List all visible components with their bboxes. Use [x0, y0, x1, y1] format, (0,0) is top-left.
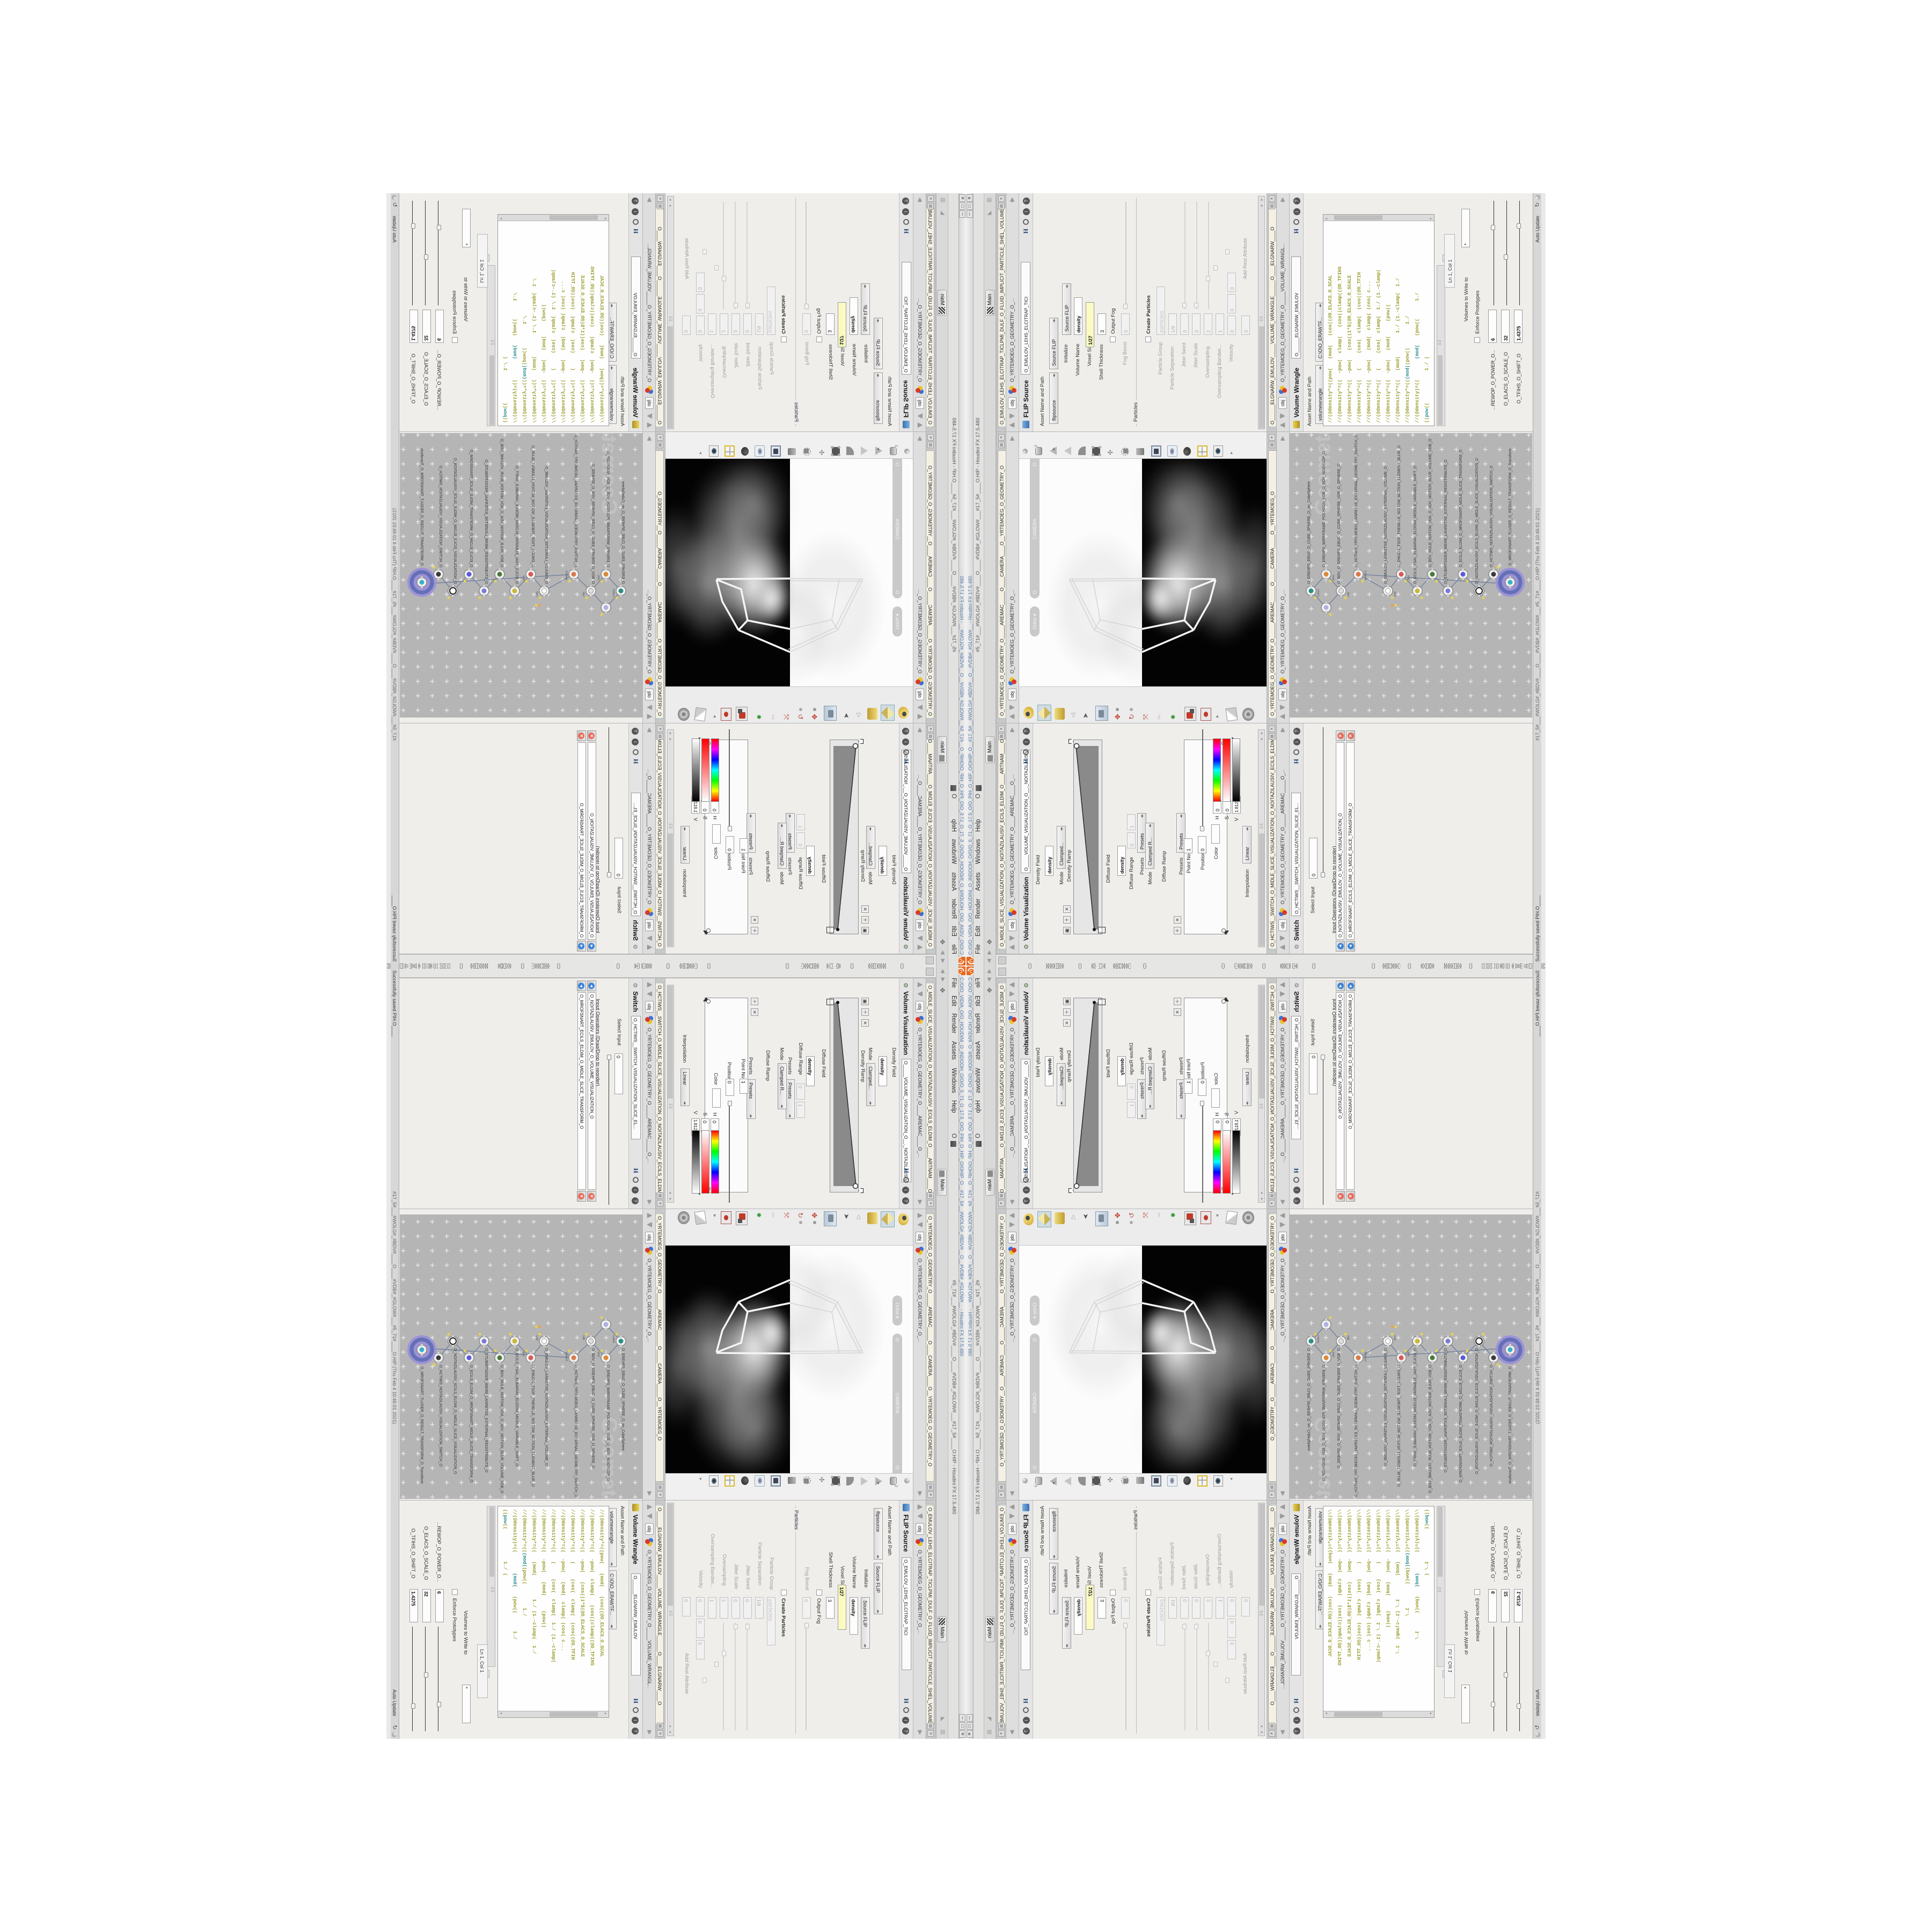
svg-text:O_HCTIWS_YRTEMOEG_LANRETXE_EXT: O_HCTIWS_YRTEMOEG_LANRETXE_EXTERNAL_GEOM…: [574, 1365, 577, 1498]
svg-text:blur: blur: [1407, 575, 1410, 580]
svg-text:O_BDV_O_EREHPS_EBUC_O_CUBE_SPH: O_BDV_O_EREHPS_EBUC_O_CUBE_SPHERE_VDB_O_…: [1337, 1348, 1341, 1469]
svg-text:O_MROFSNART_TLUSER_O_RESULT_TR: O_MROFSNART_TLUSER_O_RESULT_TRANSFORM_O_…: [420, 448, 423, 566]
svg-text:O_EREHPS_EBUC_O_CUBE_SPHERE_O_: O_EREHPS_EBUC_O_CUBE_SPHERE_O_an_CubeSph…: [621, 1348, 625, 1451]
svg-text:O_DNUOS_TSOP_TNEMELE_NOITOM_MO: O_DNUOS_TSOP_TNEMELE_NOITOM_MOTION_ELEME…: [531, 1365, 535, 1487]
svg-text:O_EMULOV_LANRETXE_NOITAZILAUSI: O_EMULOV_LANRETXE_NOITAZILAUSIV_EXTERNAL…: [1384, 1348, 1388, 1466]
svg-text:switch1: switch1: [565, 1352, 568, 1362]
svg-text:O_NOITAZILAUSIV_ECILS_ELDIM_O_: O_NOITAZILAUSIV_ECILS_ELDIM_O_MIDLE_SLIC…: [1475, 458, 1479, 584]
svg-text:O_NOITAZILAUSIV_ECILS_ELDIM_O_: O_NOITAZILAUSIV_ECILS_ELDIM_O_MIDLE_SLIC…: [1475, 1348, 1479, 1474]
svg-text:O_ECILS_TSAL_ELBAIRAV_ELDDIM_M: O_ECILS_TSAL_ELBAIRAV_ELDDIM_MIDDLE_VARI…: [515, 465, 518, 584]
svg-text:O_EREHPS_WIREFRAME_POLYGON_VDB: O_EREHPS_WIREFRAME_POLYGON_VDB_O_BDV_NOG…: [1322, 451, 1326, 567]
svg-text:O_DNUOS_TSOP_TNEMELE_NOITOM_MO: O_DNUOS_TSOP_TNEMELE_NOITOM_MOTION_ELEME…: [1397, 445, 1401, 567]
svg-text:cube1: cube1: [1317, 1335, 1320, 1343]
svg-text:vdb: vdb: [582, 1335, 585, 1340]
svg-text:O_BDV_RULB_NOITOM_VDA_O_ADV_MO: O_BDV_RULB_NOITOM_VDA_O_ADV_MOTION_BLUR_…: [500, 438, 503, 567]
svg-text:O_ECILS_ELDIM_O_MROFSNART_MIDL: O_ECILS_ELDIM_O_MROFSNART_MIDLE_SLICE_TR…: [1459, 449, 1463, 567]
svg-text:O_HCTIWS_NOITAZILAUSIV_VISUALI: O_HCTIWS_NOITAZILAUSIV_VISUALIZATION_SWI…: [438, 1365, 442, 1467]
svg-text:O_EREHPS_EBUC_O_CUBE_SPHERE_O_: O_EREHPS_EBUC_O_CUBE_SPHERE_O_an_CubeSph…: [621, 481, 625, 584]
svg-text:O_DNUOS_TSOP_TNEMELE_NOITOM_MO: O_DNUOS_TSOP_TNEMELE_NOITOM_MOTION_ELEME…: [1397, 1365, 1401, 1487]
svg-text:O_BDV_RULB_NOITOM_VDA_O_ADV_MO: O_BDV_RULB_NOITOM_VDA_O_ADV_MOTION_BLUR_…: [1429, 1365, 1432, 1494]
svg-text:O_HCTIWS_YRTEMOEG_LANRETXE_EXT: O_HCTIWS_YRTEMOEG_LANRETXE_EXTERNAL_GEOM…: [574, 434, 577, 567]
svg-text:switch1: switch1: [1364, 1352, 1367, 1362]
svg-text:cube1: cube1: [612, 1335, 615, 1343]
svg-text:O_HCTIWS_YRTEMOEG_LANRETXE_EXT: O_HCTIWS_YRTEMOEG_LANRETXE_EXTERNAL_GEOM…: [1355, 1365, 1358, 1498]
svg-text:vol2: vol2: [535, 591, 538, 597]
svg-text:O_DNUOS_TSOP_TNEMELE_NOITOM_MO: O_DNUOS_TSOP_TNEMELE_NOITOM_MOTION_ELEME…: [531, 445, 535, 567]
svg-text:cube1: cube1: [1317, 589, 1320, 597]
svg-text:O_ECILS_TSAL_ELBAIRAV_ELDDIM_M: O_ECILS_TSAL_ELBAIRAV_ELDDIM_MIDDLE_VARI…: [515, 1348, 518, 1467]
svg-text:poly: poly: [1332, 575, 1335, 580]
svg-text:O_ETUBIRTSIDER_WERB_LANRETXE_E: O_ETUBIRTSIDER_WERB_LANRETXE_EXTERNAL_RE…: [1444, 1348, 1448, 1473]
svg-text:O_ETUBIRTSIDER_WERB_LANRETXE_E: O_ETUBIRTSIDER_WERB_LANRETXE_EXTERNAL_RE…: [1444, 459, 1448, 584]
svg-text:O_MROFSNART_TLUSER_O_RESULT_TR: O_MROFSNART_TLUSER_O_RESULT_TRANSFORM_O_…: [1509, 448, 1512, 566]
svg-text:vol2: vol2: [1394, 1335, 1397, 1341]
svg-text:vdb: vdb: [582, 592, 585, 597]
svg-text:O_BDV_O_EREHPS_EBUC_O_CUBE_SPH: O_BDV_O_EREHPS_EBUC_O_CUBE_SPHERE_VDB_O_…: [591, 1348, 595, 1469]
svg-text:O_HCTIWS_NOITAZILAUSIV_VISUALI: O_HCTIWS_NOITAZILAUSIV_VISUALIZATION_SWI…: [1490, 1365, 1494, 1467]
svg-text:O_HCTIWS_NOITAZILAUSIV_VISUALI: O_HCTIWS_NOITAZILAUSIV_VISUALIZATION_SWI…: [438, 465, 442, 567]
svg-text:vol2: vol2: [1394, 591, 1397, 597]
svg-text:O_NOITAZILAUSIV_ECILS_ELDIM_O_: O_NOITAZILAUSIV_ECILS_ELDIM_O_MIDLE_SLIC…: [453, 458, 457, 584]
svg-text:O_ECILS_ELDIM_O_MROFSNART_MIDL: O_ECILS_ELDIM_O_MROFSNART_MIDLE_SLICE_TR…: [469, 1365, 473, 1483]
svg-text:O_ECILS_TSAL_ELBAIRAV_ELDDIM_M: O_ECILS_TSAL_ELBAIRAV_ELDDIM_MIDDLE_VARI…: [1414, 465, 1417, 584]
svg-text:blur: blur: [1407, 1352, 1410, 1357]
svg-text:O_EREHPS_EBUC_O_CUBE_SPHERE_O_: O_EREHPS_EBUC_O_CUBE_SPHERE_O_an_CubeSph…: [1307, 481, 1311, 584]
svg-text:O_NOITAZILAUSIV_ECILS_ELDIM_O_: O_NOITAZILAUSIV_ECILS_ELDIM_O_MIDLE_SLIC…: [453, 1348, 457, 1474]
svg-text:O_BDV_O_EREHPS_EBUC_O_CUBE_SPH: O_BDV_O_EREHPS_EBUC_O_CUBE_SPHERE_VDB_O_…: [591, 463, 595, 584]
svg-text:vol2: vol2: [535, 1335, 538, 1341]
svg-text:O_HCTIWS_YRTEMOEG_LANRETXE_EXT: O_HCTIWS_YRTEMOEG_LANRETXE_EXTERNAL_GEOM…: [1355, 434, 1358, 567]
svg-text:O_EMULOV_LANRETXE_NOITAZILAUSI: O_EMULOV_LANRETXE_NOITAZILAUSIV_EXTERNAL…: [544, 466, 548, 584]
svg-text:poly: poly: [597, 575, 600, 580]
svg-text:poly: poly: [597, 1352, 600, 1357]
svg-text:O_BDV_O_EREHPS_EBUC_O_CUBE_SPH: O_BDV_O_EREHPS_EBUC_O_CUBE_SPHERE_VDB_O_…: [1337, 463, 1341, 584]
svg-text:switch1: switch1: [565, 570, 568, 580]
svg-text:O_ECILS_ELDIM_O_MROFSNART_MIDL: O_ECILS_ELDIM_O_MROFSNART_MIDLE_SLICE_TR…: [1459, 1365, 1463, 1483]
svg-text:O_BDV_RULB_NOITOM_VDA_O_ADV_MO: O_BDV_RULB_NOITOM_VDA_O_ADV_MOTION_BLUR_…: [500, 1365, 503, 1494]
svg-text:O_ECILS_TSAL_ELBAIRAV_ELDDIM_M: O_ECILS_TSAL_ELBAIRAV_ELDDIM_MIDDLE_VARI…: [1414, 1348, 1417, 1467]
svg-text:cube1: cube1: [612, 589, 615, 597]
svg-text:O_HCTIWS_NOITAZILAUSIV_VISUALI: O_HCTIWS_NOITAZILAUSIV_VISUALIZATION_SWI…: [1490, 465, 1494, 567]
svg-text:O_EMULOV_LANRETXE_NOITAZILAUSI: O_EMULOV_LANRETXE_NOITAZILAUSIV_EXTERNAL…: [544, 1348, 548, 1466]
svg-text:switch1: switch1: [1364, 570, 1367, 580]
svg-text:O_ETUBIRTSIDER_WERB_LANRETXE_E: O_ETUBIRTSIDER_WERB_LANRETXE_EXTERNAL_RE…: [484, 459, 488, 584]
svg-text:poly: poly: [1332, 1352, 1335, 1357]
svg-text:blur: blur: [522, 1352, 525, 1357]
svg-text:vdb: vdb: [1347, 592, 1350, 597]
svg-text:O_EREHPS_WIREFRAME_POLYGON_VDB: O_EREHPS_WIREFRAME_POLYGON_VDB_O_BDV_NOG…: [606, 451, 610, 567]
svg-text:O_EMULOV_LANRETXE_NOITAZILAUSI: O_EMULOV_LANRETXE_NOITAZILAUSIV_EXTERNAL…: [1384, 466, 1388, 584]
svg-text:O_EREHPS_WIREFRAME_POLYGON_VDB: O_EREHPS_WIREFRAME_POLYGON_VDB_O_BDV_NOG…: [1322, 1365, 1326, 1481]
svg-text:vdb: vdb: [1347, 1335, 1350, 1340]
svg-text:blur: blur: [522, 575, 525, 580]
svg-text:O_ETUBIRTSIDER_WERB_LANRETXE_E: O_ETUBIRTSIDER_WERB_LANRETXE_EXTERNAL_RE…: [484, 1348, 488, 1473]
svg-text:O_EREHPS_EBUC_O_CUBE_SPHERE_O_: O_EREHPS_EBUC_O_CUBE_SPHERE_O_an_CubeSph…: [1307, 1348, 1311, 1451]
svg-text:O_BDV_RULB_NOITOM_VDA_O_ADV_MO: O_BDV_RULB_NOITOM_VDA_O_ADV_MOTION_BLUR_…: [1429, 438, 1432, 567]
svg-text:O_EREHPS_WIREFRAME_POLYGON_VDB: O_EREHPS_WIREFRAME_POLYGON_VDB_O_BDV_NOG…: [606, 1365, 610, 1481]
svg-text:O_ECILS_ELDIM_O_MROFSNART_MIDL: O_ECILS_ELDIM_O_MROFSNART_MIDLE_SLICE_TR…: [469, 449, 473, 567]
svg-text:O_MROFSNART_TLUSER_O_RESULT_TR: O_MROFSNART_TLUSER_O_RESULT_TRANSFORM_O_…: [420, 1366, 423, 1484]
svg-text:O_MROFSNART_TLUSER_O_RESULT_TR: O_MROFSNART_TLUSER_O_RESULT_TRANSFORM_O_…: [1509, 1366, 1512, 1484]
